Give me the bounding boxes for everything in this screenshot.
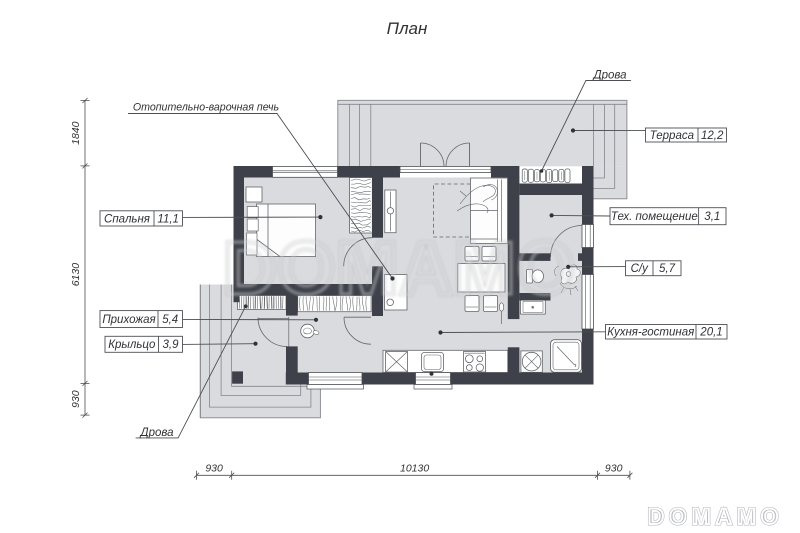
svg-text:6130: 6130 <box>70 263 82 287</box>
svg-text:12,2: 12,2 <box>701 130 724 142</box>
svg-text:Прихожая: Прихожая <box>102 314 155 326</box>
svg-text:С/у: С/у <box>631 263 650 275</box>
svg-text:Кухня-гостиная: Кухня-гостиная <box>607 327 694 339</box>
svg-text:Дрова: Дрова <box>138 427 173 439</box>
svg-text:DOMAMO: DOMAMO <box>223 226 576 310</box>
svg-text:Терраса: Терраса <box>650 130 694 142</box>
svg-text:5,7: 5,7 <box>659 263 676 275</box>
svg-text:План: План <box>387 19 428 38</box>
svg-text:3,9: 3,9 <box>163 339 180 351</box>
svg-text:930: 930 <box>70 390 82 408</box>
svg-text:11,1: 11,1 <box>157 213 179 225</box>
svg-text:3,1: 3,1 <box>704 211 720 223</box>
svg-text:Спальня: Спальня <box>104 213 150 225</box>
svg-text:930: 930 <box>605 463 623 475</box>
svg-text:10130: 10130 <box>400 463 429 475</box>
svg-text:Дрова: Дрова <box>591 70 626 82</box>
svg-text:20,1: 20,1 <box>699 327 722 339</box>
svg-text:5,4: 5,4 <box>162 314 178 326</box>
svg-text:930: 930 <box>205 463 223 475</box>
svg-text:1840: 1840 <box>70 121 82 145</box>
svg-text:DOMAMO: DOMAMO <box>648 504 784 529</box>
svg-text:Отопительно-варочная печь: Отопительно-варочная печь <box>133 102 279 114</box>
svg-text:Тех. помещение: Тех. помещение <box>611 211 698 223</box>
svg-text:Крыльцо: Крыльцо <box>108 339 156 351</box>
